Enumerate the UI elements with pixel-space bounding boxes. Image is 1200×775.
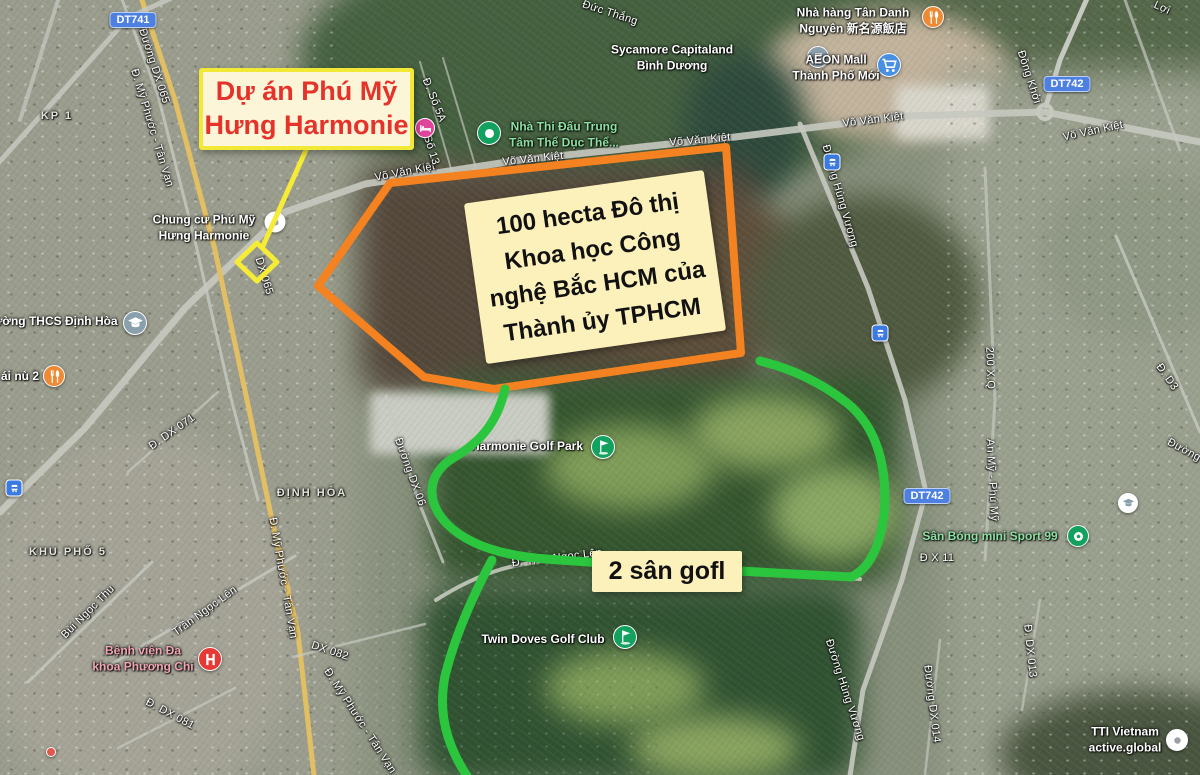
callout-line2: Hưng Harmonie — [203, 109, 410, 143]
annotation-layer — [0, 0, 1200, 775]
green-golf-outline-1 — [432, 361, 885, 577]
label-100-hecta: 100 hecta Đô thị Khoa học Công nghệ Bắc … — [464, 170, 726, 364]
yellow-site-diamond — [237, 243, 277, 281]
label-2-san-gofl: 2 sân gofl — [592, 551, 742, 592]
map-viewport[interactable]: KP 1ĐỊNH HÒAKHU PHỐ 5Đức ThắngVõ Văn Kiệ… — [0, 0, 1200, 775]
yellow-pointer-line — [263, 150, 306, 246]
callout-line1: Dự án Phú Mỹ — [203, 75, 410, 109]
callout-phu-my-hung-harmonie: Dự án Phú Mỹ Hưng Harmonie — [199, 68, 414, 150]
green-golf-outline-2 — [443, 560, 492, 775]
